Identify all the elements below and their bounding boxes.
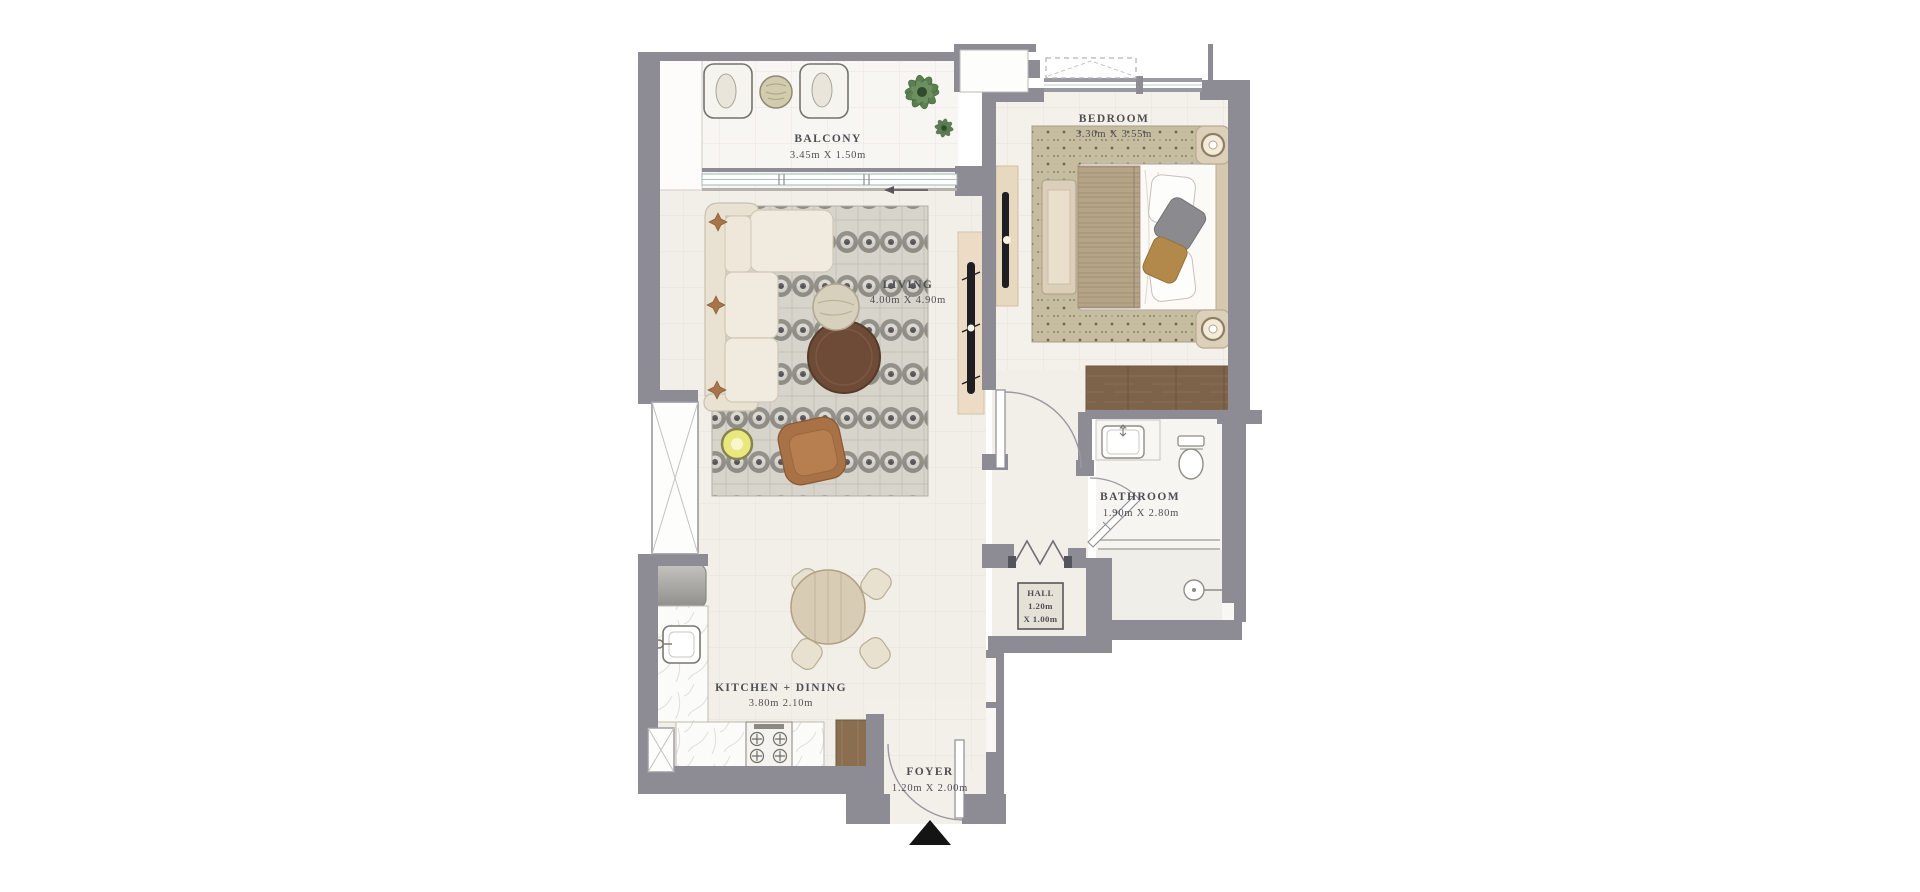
- bed: [1078, 158, 1230, 314]
- balcony-table: [760, 76, 792, 108]
- balcony-label: BALCONY: [794, 133, 861, 145]
- foyer-cabinet: [836, 720, 870, 768]
- bedroom-dims: 3.30m X 3.55m: [1076, 129, 1152, 140]
- bathroom-label: BATHROOM: [1100, 491, 1180, 503]
- tv-console-bedroom: [996, 166, 1018, 306]
- headboard: [1216, 158, 1230, 314]
- foyer-dims: 1.20m X 2.00m: [892, 783, 968, 794]
- window-projection-lines: [1048, 61, 1134, 76]
- kitchen-dining-label: KITCHEN + DINING: [715, 682, 847, 694]
- fridge: [654, 564, 706, 608]
- floor-lamp: [722, 429, 752, 459]
- toilet-bowl: [1179, 449, 1203, 479]
- balcony-chair: [800, 64, 848, 118]
- balcony-chair: [704, 64, 752, 118]
- kitchen-dining-dims: 3.80m 2.10m: [749, 698, 814, 709]
- bedroom-label: BEDROOM: [1079, 113, 1150, 125]
- balcony-side-parapet: [658, 58, 702, 190]
- kitchen-counter-left: [655, 606, 708, 722]
- bedroom-window: [1044, 76, 1202, 94]
- marble-side-table: [813, 284, 859, 330]
- hall-label: HALL: [1027, 588, 1054, 598]
- hall-dims-line2: X 1.00m: [1023, 614, 1057, 624]
- foyer-label: FOYER: [906, 766, 953, 778]
- nightstand-top: [1196, 126, 1230, 164]
- shaft-window-small: [648, 728, 674, 772]
- tv-console-living: [958, 232, 984, 414]
- kitchen-counter-bottom: [676, 722, 824, 768]
- bed-blanket: [1078, 166, 1140, 308]
- bathroom-dims: 1.90m X 2.80m: [1103, 508, 1179, 519]
- nightstand-bottom: [1196, 310, 1230, 348]
- hall-label-box: HALL 1.20m X 1.00m: [1018, 583, 1063, 629]
- hall-dims-line1: 1.20m: [1028, 601, 1053, 611]
- neighbor-structure: [960, 50, 1028, 92]
- wardrobe: [1086, 366, 1232, 412]
- shaft-window: [652, 402, 698, 554]
- living-dims: 4.00m X 4.90m: [870, 295, 946, 306]
- armchair: [775, 414, 849, 488]
- balcony-dims: 3.45m X 1.50m: [790, 150, 866, 161]
- floor-plan: BALCONY 3.45m X 1.50m BEDROOM 3.30m X 3.…: [630, 8, 1262, 856]
- floor-plan-page: BALCONY 3.45m X 1.50m BEDROOM 3.30m X 3.…: [0, 0, 1920, 892]
- toilet-tank: [1178, 436, 1204, 446]
- coffee-table: [808, 321, 880, 393]
- living-label: LIVING: [883, 279, 934, 291]
- bedroom-bench: [1042, 180, 1076, 294]
